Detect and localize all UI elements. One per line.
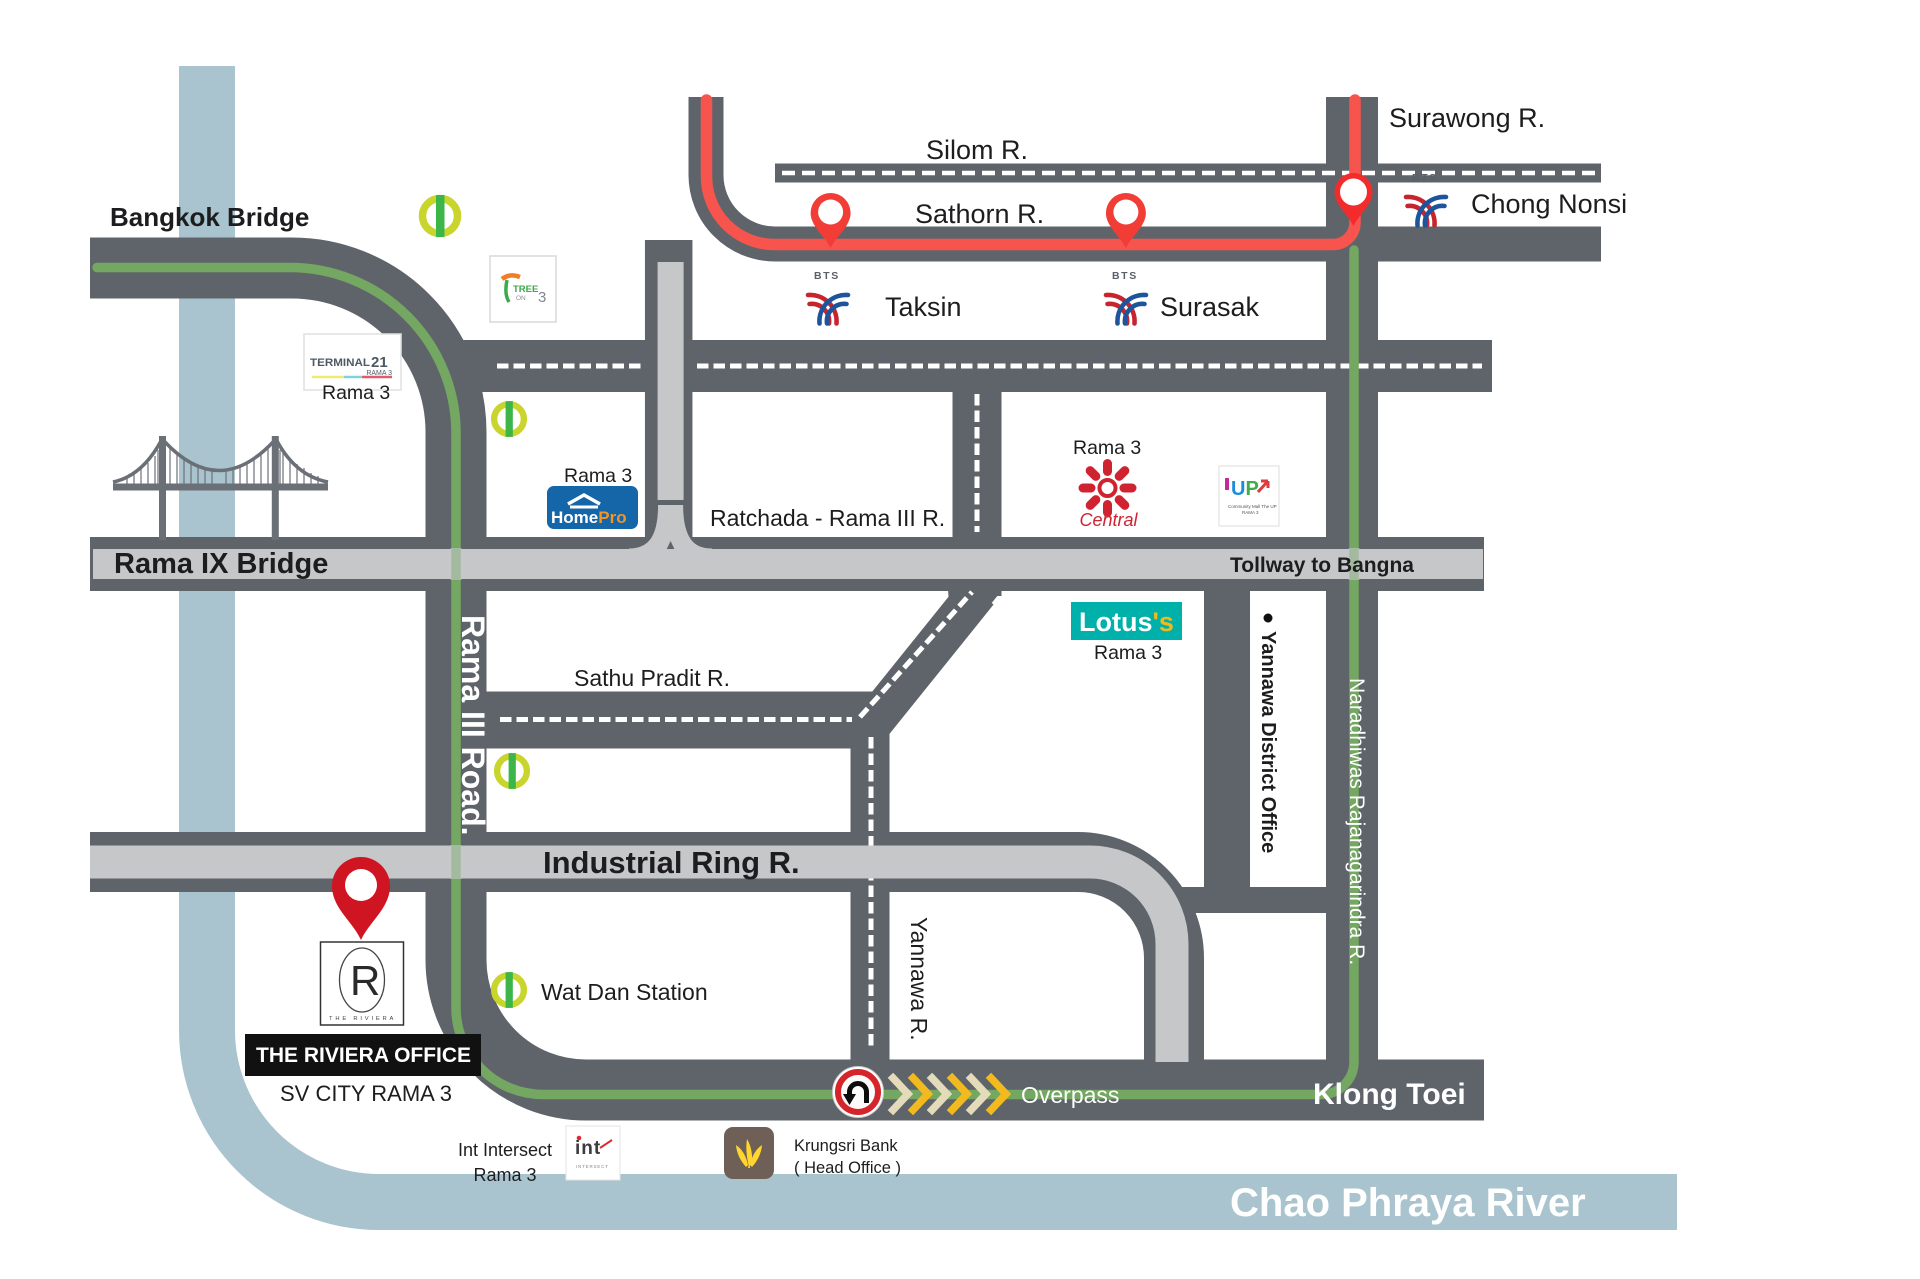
svg-text:Chong Nonsi: Chong Nonsi <box>1471 189 1627 219</box>
svg-text:ON: ON <box>516 295 526 302</box>
svg-text:3: 3 <box>538 289 546 306</box>
svg-text:Sathorn R.: Sathorn R. <box>915 199 1044 229</box>
svg-text:Overpass: Overpass <box>1021 1082 1119 1108</box>
svg-text:Yannawa R.: Yannawa R. <box>906 917 932 1041</box>
svg-text:THE RIVIERA OFFICE: THE RIVIERA OFFICE <box>256 1044 471 1067</box>
svg-text:RAMA 3: RAMA 3 <box>1242 510 1259 515</box>
svg-text:INTERSECT: INTERSECT <box>576 1164 609 1169</box>
svg-text:Krungsri Bank: Krungsri Bank <box>794 1137 898 1155</box>
svg-text:SV CITY RAMA 3: SV CITY RAMA 3 <box>280 1081 452 1106</box>
svg-text:Bangkok Bridge: Bangkok Bridge <box>110 202 309 232</box>
svg-text:Klong Toei: Klong Toei <box>1313 1078 1466 1111</box>
svg-text:Rama 3: Rama 3 <box>1094 642 1162 664</box>
svg-text:R: R <box>350 957 380 1004</box>
svg-text:Silom R.: Silom R. <box>926 135 1028 165</box>
svg-text:Community Mall The UP: Community Mall The UP <box>1228 504 1277 509</box>
svg-text:HomePro: HomePro <box>551 508 627 527</box>
svg-text:UP: UP <box>1231 478 1259 500</box>
svg-text:Industrial Ring R.: Industrial Ring R. <box>543 845 800 880</box>
svg-text:Wat Dan Station: Wat Dan Station <box>541 979 708 1005</box>
svg-text:Central: Central <box>1080 510 1139 530</box>
svg-text:Naradhiwas Rajanagarindra R.: Naradhiwas Rajanagarindra R. <box>1345 678 1368 965</box>
svg-text:int: int <box>575 1138 601 1159</box>
svg-text:Int Intersect: Int Intersect <box>458 1140 552 1160</box>
svg-text:21: 21 <box>371 354 388 371</box>
svg-text:Rama 3: Rama 3 <box>473 1165 536 1185</box>
svg-text:Surawong R.: Surawong R. <box>1389 103 1545 133</box>
svg-text:Rama IX Bridge: Rama IX Bridge <box>114 548 328 580</box>
svg-text:TREE: TREE <box>513 284 538 295</box>
svg-text:Ratchada - Rama III R.: Ratchada - Rama III R. <box>710 505 945 531</box>
svg-text:Rama III Road.: Rama III Road. <box>455 615 491 836</box>
svg-text:THE RIVIERA: THE RIVIERA <box>329 1016 396 1022</box>
svg-text:Lotus's: Lotus's <box>1079 607 1174 637</box>
svg-text:Yannawa District Office: Yannawa District Office <box>1257 631 1279 853</box>
svg-text:Surasak: Surasak <box>1160 292 1260 322</box>
svg-text:Sathu Pradit R.: Sathu Pradit R. <box>574 665 730 691</box>
svg-text:Rama 3: Rama 3 <box>1073 437 1141 459</box>
svg-text:( Head Office ): ( Head Office ) <box>794 1159 901 1177</box>
svg-text:Rama 3: Rama 3 <box>564 465 632 487</box>
svg-text:TERMINAL: TERMINAL <box>310 357 370 369</box>
svg-text:Rama 3: Rama 3 <box>322 382 390 404</box>
svg-text:Taksin: Taksin <box>885 292 962 322</box>
svg-text:Tollway to Bangna: Tollway to Bangna <box>1230 554 1414 577</box>
svg-text:Chao Phraya River: Chao Phraya River <box>1230 1181 1586 1225</box>
